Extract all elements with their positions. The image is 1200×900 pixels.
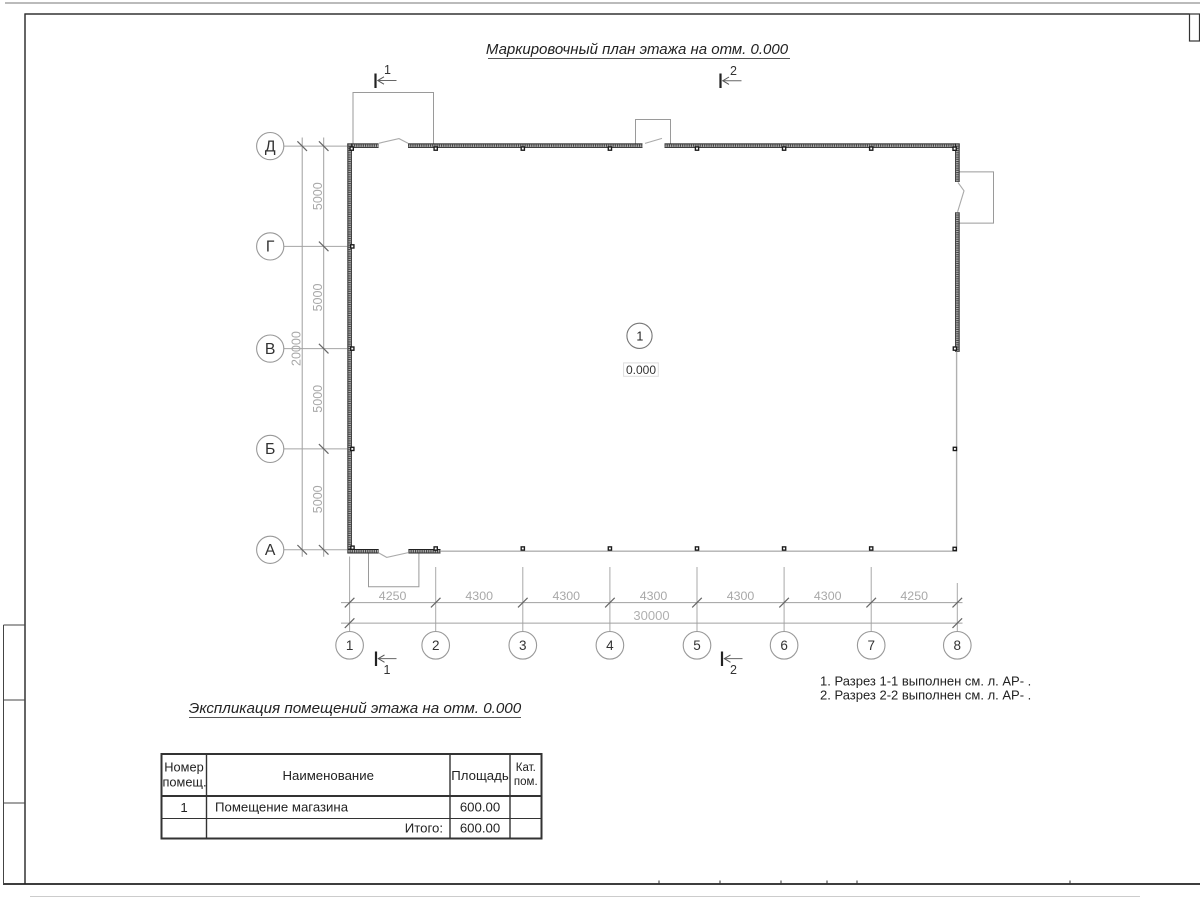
svg-text:0.000: 0.000 bbox=[626, 363, 656, 377]
svg-text:7: 7 bbox=[867, 638, 875, 653]
svg-text:Итого:: Итого: bbox=[405, 821, 443, 836]
svg-text:4300: 4300 bbox=[553, 589, 581, 603]
svg-text:4250: 4250 bbox=[379, 589, 407, 603]
svg-text:2: 2 bbox=[730, 663, 737, 677]
svg-text:Номер: Номер bbox=[164, 760, 203, 775]
svg-text:Помещение магазина: Помещение магазина bbox=[215, 800, 349, 815]
svg-text:6: 6 bbox=[780, 638, 788, 653]
svg-text:4300: 4300 bbox=[727, 589, 755, 603]
svg-text:600.00: 600.00 bbox=[460, 821, 500, 836]
svg-text:помещ.: помещ. bbox=[162, 775, 206, 790]
svg-text:Г: Г bbox=[266, 239, 275, 256]
svg-text:5000: 5000 bbox=[311, 182, 325, 210]
svg-text:Маркировочный план этажа на от: Маркировочный план этажа на отм. 0.000 bbox=[486, 41, 789, 58]
svg-text:2: 2 bbox=[730, 64, 737, 78]
svg-text:5: 5 bbox=[693, 638, 701, 653]
svg-text:20000: 20000 bbox=[290, 331, 304, 366]
svg-text:А: А bbox=[265, 542, 276, 559]
svg-text:Экспликация помещений этажа на: Экспликация помещений этажа на отм. 0.00… bbox=[189, 700, 522, 717]
svg-text:4300: 4300 bbox=[640, 589, 668, 603]
svg-text:1. Разрез 1-1 выполнен см. л.: 1. Разрез 1-1 выполнен см. л. АР- . bbox=[820, 674, 1031, 689]
svg-text:5000: 5000 bbox=[311, 284, 325, 312]
svg-text:4250: 4250 bbox=[900, 589, 928, 603]
svg-text:Д: Д bbox=[265, 138, 276, 155]
svg-text:2: 2 bbox=[432, 638, 440, 653]
svg-text:4300: 4300 bbox=[814, 589, 842, 603]
svg-text:1: 1 bbox=[384, 663, 391, 677]
svg-text:2. Разрез 2-2 выполнен см. л.: 2. Разрез 2-2 выполнен см. л. АР- . bbox=[820, 688, 1031, 703]
svg-text:Б: Б bbox=[265, 441, 275, 458]
svg-text:Наименование: Наименование bbox=[282, 768, 373, 783]
svg-text:4: 4 bbox=[606, 638, 614, 653]
svg-text:4300: 4300 bbox=[465, 589, 493, 603]
svg-text:30000: 30000 bbox=[633, 608, 669, 623]
svg-text:5000: 5000 bbox=[311, 485, 325, 513]
svg-text:1: 1 bbox=[384, 63, 391, 77]
svg-text:1: 1 bbox=[180, 800, 187, 815]
svg-text:пом.: пом. bbox=[514, 776, 538, 788]
svg-text:1: 1 bbox=[636, 329, 643, 343]
svg-text:Кат.: Кат. bbox=[516, 762, 536, 774]
svg-text:В: В bbox=[265, 341, 276, 358]
svg-text:1: 1 bbox=[346, 638, 354, 653]
svg-text:5000: 5000 bbox=[311, 385, 325, 413]
svg-text:8: 8 bbox=[954, 638, 962, 653]
svg-text:3: 3 bbox=[519, 638, 527, 653]
svg-text:600.00: 600.00 bbox=[460, 800, 500, 815]
svg-text:Площадь: Площадь bbox=[451, 768, 509, 783]
